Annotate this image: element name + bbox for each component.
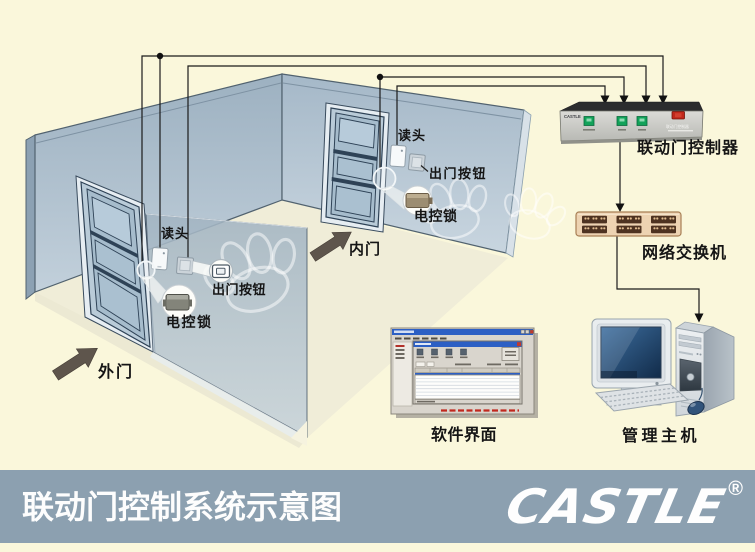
castle-logo-icon: CASTLE (502, 483, 730, 531)
schematic-page: CASTLE 联动门控制器 (0, 0, 755, 552)
software-window-icon (391, 328, 538, 418)
network-switch-label: 网络交换机 (642, 246, 727, 262)
software-ui-label: 软件界面 (431, 428, 497, 444)
outer-exit-button-icon (176, 257, 193, 275)
controller-power-switch (672, 112, 685, 120)
outer-door-arrow-icon (49, 339, 103, 385)
controller-label: 联动门控制器 (637, 141, 739, 157)
outer-reader-label: 读头 (161, 227, 189, 240)
controller-brand-text: CASTLE (564, 114, 581, 119)
controller-device: CASTLE 联动门控制器 (560, 102, 703, 144)
inner-reader-icon (390, 145, 406, 167)
inner-exit-button-label: 出门按钮 (429, 167, 487, 180)
outer-door-label: 外门 (98, 365, 134, 381)
page-title: 联动门控制系统示意图 (22, 491, 342, 523)
inner-reader-label: 读头 (398, 129, 426, 142)
title-banner: 联动门控制系统示意图 CASTLE ® (0, 470, 755, 543)
outer-lock-label: 电控锁 (166, 315, 213, 329)
inner-lock-label: 电控锁 (414, 209, 458, 223)
inner-door-label: 内门 (349, 242, 381, 257)
inner-door (321, 103, 389, 232)
registered-mark: ® (728, 478, 743, 501)
outer-exit-button-label: 出门按钮 (212, 283, 266, 296)
brand-logo: CASTLE ® (507, 482, 743, 532)
inner-exit-button-icon (408, 154, 425, 172)
front-wall (146, 214, 307, 446)
management-host-label: 管理主机 (622, 429, 700, 445)
computer-icon (592, 319, 734, 417)
controller-panel-text: 联动门控制器 (666, 124, 689, 129)
network-switch-device (576, 212, 681, 236)
